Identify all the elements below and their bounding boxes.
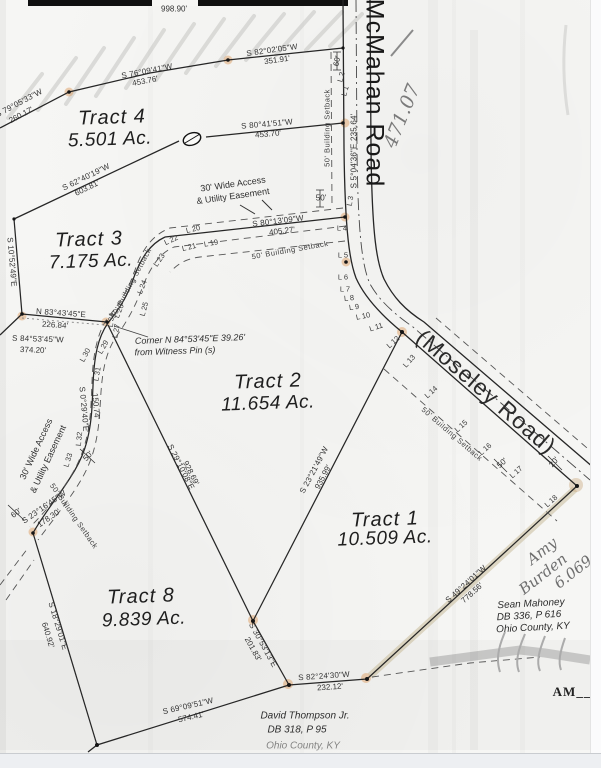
line-label: L 14 xyxy=(423,384,440,400)
plat-labels-layer: 998.90'S 82°02'05"W351.91'S 76°09'41"W45… xyxy=(0,0,601,768)
corner-note: from Witness Pin (s) xyxy=(134,345,215,358)
line-label: L 23 xyxy=(151,252,167,269)
bearing: S 0°29'40"E xyxy=(78,386,91,432)
dim: 50' xyxy=(495,456,509,470)
line-label: L 29 xyxy=(96,339,111,356)
dim-north-line: 998.90' xyxy=(161,5,187,14)
line-label: L 18 xyxy=(543,493,560,509)
scanned-plat-page: 998.90'S 82°02'05"W351.91'S 76°09'41"W45… xyxy=(0,0,601,768)
line-label: L 17 xyxy=(508,464,525,480)
line-label: L 2 xyxy=(335,71,346,83)
line-label: L 1 xyxy=(339,85,350,97)
distance: 232.12' xyxy=(317,682,344,693)
setback-label: 50' Building Setback xyxy=(420,405,485,463)
line-label: L 33 xyxy=(62,452,75,468)
line-label: L 5 xyxy=(338,251,348,260)
adjoiner-owner: David Thompson Jr. xyxy=(260,711,349,722)
distance: 453.70' xyxy=(255,128,282,139)
bearing: S 5°04'36"E 235.64' xyxy=(350,114,359,189)
line-label: L 3 xyxy=(345,195,356,207)
line-label: L 30 xyxy=(78,347,93,364)
adjoiner-county: Ohio County, KY xyxy=(496,621,570,636)
tract-area: 11.654 Ac. xyxy=(221,391,315,416)
line-label: L 24 xyxy=(135,279,149,296)
tract-area: 9.839 Ac. xyxy=(102,608,187,633)
line-label: L 31 xyxy=(91,366,102,382)
bearing: S 84°53'45"W xyxy=(12,334,64,345)
line-label: L 19 xyxy=(203,237,219,248)
tract-name: Tract 4 xyxy=(78,105,147,130)
line-label: L 21 xyxy=(181,241,197,253)
page-edge-bottom xyxy=(0,753,601,768)
line-label: L 4 xyxy=(337,224,347,233)
line-label: L 12 xyxy=(385,334,402,350)
line-label: L 7 xyxy=(340,285,350,294)
tract-name: Tract 3 xyxy=(55,227,124,252)
distance: 150.74' xyxy=(90,393,101,420)
bearing: S 10°52'49"E xyxy=(5,237,18,287)
bearing: N 83°43'45"E xyxy=(36,307,87,319)
line-label: L 9 xyxy=(348,302,359,312)
dim: 50' xyxy=(316,194,326,203)
distance: 226.84' xyxy=(42,320,69,331)
distance: 351.91' xyxy=(264,54,291,67)
tract-name: Tract 8 xyxy=(107,584,176,609)
distance: 374.20' xyxy=(20,345,46,355)
page-edge-right xyxy=(590,0,601,768)
line-label: L 6 xyxy=(338,273,348,282)
setback-label: 50' Building Setback xyxy=(251,239,329,261)
line-label: L 11 xyxy=(368,321,384,334)
corner-note: Corner N 84°53'45"E 39.26' xyxy=(135,332,246,346)
adjoiner-county: Ohio County, KY xyxy=(266,741,340,752)
distance: 405.27' xyxy=(269,225,296,237)
line-label: L 32 xyxy=(74,431,84,446)
initials: AM__ xyxy=(553,684,592,700)
setback-label: 50' Building Setback xyxy=(323,89,332,167)
tract-area: 10.509 Ac. xyxy=(337,526,433,551)
line-label: L 10 xyxy=(355,310,371,322)
dim: 50' xyxy=(81,449,95,463)
line-label: L 20 xyxy=(185,223,201,235)
dim: 60' xyxy=(332,55,343,67)
bearing: S 82°24'30"W xyxy=(298,670,350,683)
road-name: McMahan Road xyxy=(360,0,389,187)
adjoiner-deed: DB 318, P 95 xyxy=(267,725,326,736)
tract-area: 7.175 Ac. xyxy=(49,250,134,275)
line-label: L 13 xyxy=(401,353,417,370)
line-label: L 22 xyxy=(163,233,180,247)
line-label: L 25 xyxy=(138,301,150,317)
tract-area: 5.501 Ac. xyxy=(68,128,153,153)
tract-name: Tract 2 xyxy=(234,369,303,394)
dim: 20' xyxy=(547,455,561,469)
